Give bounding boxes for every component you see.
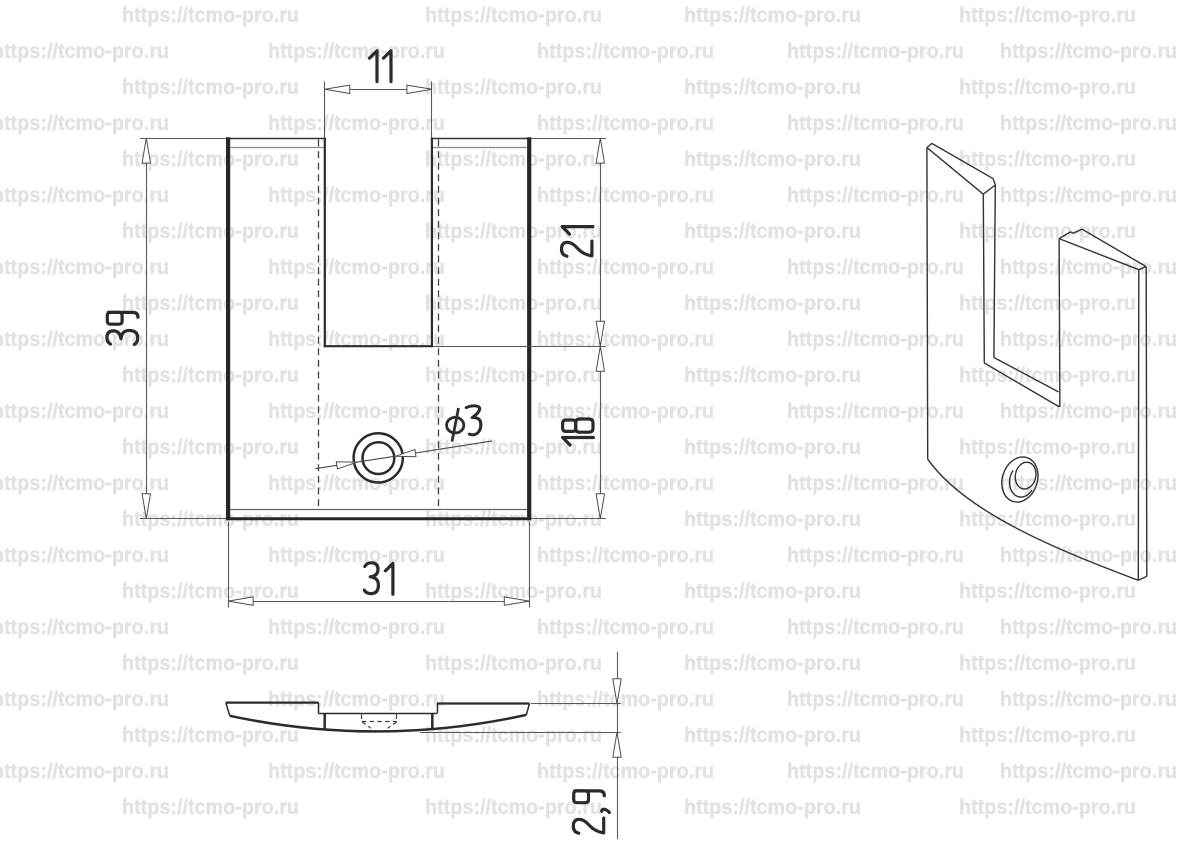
svg-text:https://tcmo-pro.ru: https://tcmo-pro.ru: [425, 148, 602, 171]
svg-text:https://tcmo-pro.ru: https://tcmo-pro.ru: [1000, 256, 1177, 279]
svg-text:https://tcmo-pro.ru: https://tcmo-pro.ru: [959, 220, 1136, 243]
svg-text:https://tcmo-pro.ru: https://tcmo-pro.ru: [425, 76, 602, 99]
svg-text:https://tcmo-pro.ru: https://tcmo-pro.ru: [787, 760, 964, 783]
svg-text:https://tcmo-pro.ru: https://tcmo-pro.ru: [0, 256, 169, 279]
svg-text:https://tcmo-pro.ru: https://tcmo-pro.ru: [537, 472, 714, 495]
svg-text:https://tcmo-pro.ru: https://tcmo-pro.ru: [0, 112, 169, 135]
svg-text:https://tcmo-pro.ru: https://tcmo-pro.ru: [1000, 40, 1177, 63]
svg-text:https://tcmo-pro.ru: https://tcmo-pro.ru: [684, 724, 861, 747]
svg-text:https://tcmo-pro.ru: https://tcmo-pro.ru: [268, 616, 445, 639]
svg-text:https://tcmo-pro.ru: https://tcmo-pro.ru: [425, 292, 602, 315]
svg-text:https://tcmo-pro.ru: https://tcmo-pro.ru: [0, 544, 169, 567]
svg-text:https://tcmo-pro.ru: https://tcmo-pro.ru: [537, 616, 714, 639]
svg-text:https://tcmo-pro.ru: https://tcmo-pro.ru: [1000, 760, 1177, 783]
svg-text:https://tcmo-pro.ru: https://tcmo-pro.ru: [684, 76, 861, 99]
svg-text:https://tcmo-pro.ru: https://tcmo-pro.ru: [537, 256, 714, 279]
svg-text:https://tcmo-pro.ru: https://tcmo-pro.ru: [787, 544, 964, 567]
svg-text:https://tcmo-pro.ru: https://tcmo-pro.ru: [787, 40, 964, 63]
svg-text:https://tcmo-pro.ru: https://tcmo-pro.ru: [425, 4, 602, 27]
svg-text:https://tcmo-pro.ru: https://tcmo-pro.ru: [0, 400, 169, 423]
svg-text:https://tcmo-pro.ru: https://tcmo-pro.ru: [1000, 184, 1177, 207]
svg-text:https://tcmo-pro.ru: https://tcmo-pro.ru: [1000, 688, 1177, 711]
svg-text:https://tcmo-pro.ru: https://tcmo-pro.ru: [959, 292, 1136, 315]
svg-text:https://tcmo-pro.ru: https://tcmo-pro.ru: [268, 760, 445, 783]
svg-text:https://tcmo-pro.ru: https://tcmo-pro.ru: [122, 364, 299, 387]
svg-text:https://tcmo-pro.ru: https://tcmo-pro.ru: [0, 472, 169, 495]
svg-text:https://tcmo-pro.ru: https://tcmo-pro.ru: [425, 220, 602, 243]
svg-text:https://tcmo-pro.ru: https://tcmo-pro.ru: [122, 436, 299, 459]
svg-text:https://tcmo-pro.ru: https://tcmo-pro.ru: [122, 76, 299, 99]
svg-text:https://tcmo-pro.ru: https://tcmo-pro.ru: [537, 184, 714, 207]
svg-text:https://tcmo-pro.ru: https://tcmo-pro.ru: [268, 328, 445, 351]
svg-text:https://tcmo-pro.ru: https://tcmo-pro.ru: [787, 472, 964, 495]
svg-text:https://tcmo-pro.ru: https://tcmo-pro.ru: [268, 40, 445, 63]
svg-text:https://tcmo-pro.ru: https://tcmo-pro.ru: [268, 544, 445, 567]
svg-text:https://tcmo-pro.ru: https://tcmo-pro.ru: [537, 544, 714, 567]
svg-text:https://tcmo-pro.ru: https://tcmo-pro.ru: [1000, 544, 1177, 567]
svg-text:https://tcmo-pro.ru: https://tcmo-pro.ru: [122, 652, 299, 675]
svg-text:https://tcmo-pro.ru: https://tcmo-pro.ru: [684, 796, 861, 819]
svg-text:https://tcmo-pro.ru: https://tcmo-pro.ru: [0, 184, 169, 207]
svg-text:https://tcmo-pro.ru: https://tcmo-pro.ru: [537, 688, 714, 711]
svg-text:https://tcmo-pro.ru: https://tcmo-pro.ru: [268, 688, 445, 711]
svg-text:https://tcmo-pro.ru: https://tcmo-pro.ru: [537, 40, 714, 63]
svg-text:https://tcmo-pro.ru: https://tcmo-pro.ru: [787, 616, 964, 639]
svg-text:https://tcmo-pro.ru: https://tcmo-pro.ru: [684, 364, 861, 387]
svg-text:https://tcmo-pro.ru: https://tcmo-pro.ru: [1000, 472, 1177, 495]
svg-text:https://tcmo-pro.ru: https://tcmo-pro.ru: [537, 328, 714, 351]
svg-text:https://tcmo-pro.ru: https://tcmo-pro.ru: [959, 148, 1136, 171]
svg-text:https://tcmo-pro.ru: https://tcmo-pro.ru: [959, 580, 1136, 603]
svg-text:https://tcmo-pro.ru: https://tcmo-pro.ru: [425, 364, 602, 387]
svg-text:https://tcmo-pro.ru: https://tcmo-pro.ru: [268, 472, 445, 495]
svg-text:https://tcmo-pro.ru: https://tcmo-pro.ru: [684, 292, 861, 315]
svg-text:https://tcmo-pro.ru: https://tcmo-pro.ru: [684, 436, 861, 459]
svg-text:https://tcmo-pro.ru: https://tcmo-pro.ru: [684, 4, 861, 27]
svg-text:https://tcmo-pro.ru: https://tcmo-pro.ru: [787, 688, 964, 711]
svg-text:https://tcmo-pro.ru: https://tcmo-pro.ru: [1000, 400, 1177, 423]
svg-text:https://tcmo-pro.ru: https://tcmo-pro.ru: [122, 724, 299, 747]
svg-text:https://tcmo-pro.ru: https://tcmo-pro.ru: [684, 148, 861, 171]
svg-text:https://tcmo-pro.ru: https://tcmo-pro.ru: [122, 292, 299, 315]
svg-text:https://tcmo-pro.ru: https://tcmo-pro.ru: [959, 76, 1136, 99]
svg-text:https://tcmo-pro.ru: https://tcmo-pro.ru: [684, 220, 861, 243]
svg-text:https://tcmo-pro.ru: https://tcmo-pro.ru: [268, 400, 445, 423]
svg-text:https://tcmo-pro.ru: https://tcmo-pro.ru: [684, 652, 861, 675]
svg-text:https://tcmo-pro.ru: https://tcmo-pro.ru: [959, 4, 1136, 27]
svg-text:https://tcmo-pro.ru: https://tcmo-pro.ru: [684, 508, 861, 531]
svg-text:https://tcmo-pro.ru: https://tcmo-pro.ru: [1000, 616, 1177, 639]
svg-text:https://tcmo-pro.ru: https://tcmo-pro.ru: [959, 436, 1136, 459]
svg-text:https://tcmo-pro.ru: https://tcmo-pro.ru: [0, 40, 169, 63]
svg-text:https://tcmo-pro.ru: https://tcmo-pro.ru: [1000, 328, 1177, 351]
svg-text:https://tcmo-pro.ru: https://tcmo-pro.ru: [122, 796, 299, 819]
svg-text:https://tcmo-pro.ru: https://tcmo-pro.ru: [268, 112, 445, 135]
svg-text:https://tcmo-pro.ru: https://tcmo-pro.ru: [0, 688, 169, 711]
svg-text:https://tcmo-pro.ru: https://tcmo-pro.ru: [122, 4, 299, 27]
svg-text:https://tcmo-pro.ru: https://tcmo-pro.ru: [684, 580, 861, 603]
svg-text:https://tcmo-pro.ru: https://tcmo-pro.ru: [0, 760, 169, 783]
svg-text:https://tcmo-pro.ru: https://tcmo-pro.ru: [959, 796, 1136, 819]
svg-text:https://tcmo-pro.ru: https://tcmo-pro.ru: [425, 652, 602, 675]
svg-text:https://tcmo-pro.ru: https://tcmo-pro.ru: [268, 184, 445, 207]
svg-text:https://tcmo-pro.ru: https://tcmo-pro.ru: [537, 112, 714, 135]
svg-text:https://tcmo-pro.ru: https://tcmo-pro.ru: [537, 760, 714, 783]
svg-text:https://tcmo-pro.ru: https://tcmo-pro.ru: [122, 580, 299, 603]
svg-text:https://tcmo-pro.ru: https://tcmo-pro.ru: [0, 616, 169, 639]
svg-text:https://tcmo-pro.ru: https://tcmo-pro.ru: [959, 508, 1136, 531]
svg-text:https://tcmo-pro.ru: https://tcmo-pro.ru: [0, 328, 169, 351]
svg-text:https://tcmo-pro.ru: https://tcmo-pro.ru: [959, 364, 1136, 387]
svg-text:https://tcmo-pro.ru: https://tcmo-pro.ru: [787, 112, 964, 135]
svg-text:https://tcmo-pro.ru: https://tcmo-pro.ru: [1000, 112, 1177, 135]
svg-text:https://tcmo-pro.ru: https://tcmo-pro.ru: [959, 724, 1136, 747]
svg-text:https://tcmo-pro.ru: https://tcmo-pro.ru: [959, 652, 1136, 675]
svg-text:https://tcmo-pro.ru: https://tcmo-pro.ru: [122, 220, 299, 243]
svg-text:https://tcmo-pro.ru: https://tcmo-pro.ru: [787, 328, 964, 351]
svg-text:https://tcmo-pro.ru: https://tcmo-pro.ru: [425, 796, 602, 819]
svg-text:https://tcmo-pro.ru: https://tcmo-pro.ru: [787, 256, 964, 279]
svg-text:https://tcmo-pro.ru: https://tcmo-pro.ru: [787, 400, 964, 423]
svg-text:https://tcmo-pro.ru: https://tcmo-pro.ru: [787, 184, 964, 207]
svg-text:https://tcmo-pro.ru: https://tcmo-pro.ru: [268, 256, 445, 279]
